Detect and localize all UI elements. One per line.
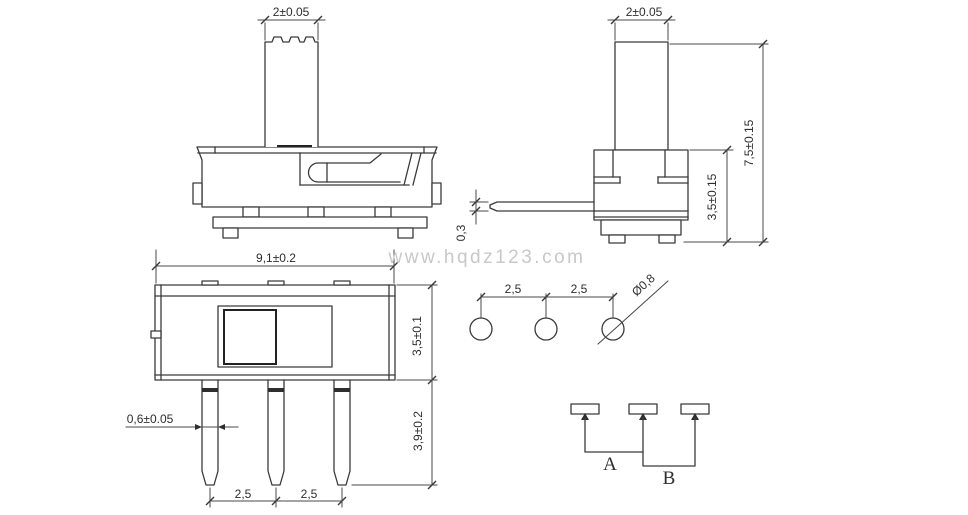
top-dim-terminal-width: 0,6±0.05 — [126, 412, 238, 430]
side-terminal-pin — [490, 202, 594, 211]
schematic-position-a-label: A — [603, 454, 617, 475]
side-dim-terminal-thickness: 0,3 — [454, 190, 488, 241]
side-body-height-label: 3,5±0.15 — [705, 173, 719, 220]
schematic-link-a — [585, 418, 643, 452]
side-foot-left — [609, 235, 625, 243]
hole-pitch-left-label: 2,5 — [505, 282, 522, 296]
top-terminal-length-label: 3,9±0.2 — [411, 411, 425, 451]
top-dim-body-width: 3,5±0.1 — [397, 281, 437, 384]
slide-switch-drawing: 2±0.05 2±0.05 — [0, 0, 968, 515]
schematic-terminal-1 — [571, 404, 599, 414]
technical-drawing-canvas: 2±0.05 2±0.05 — [0, 0, 968, 515]
schematic-terminal-3 — [681, 404, 709, 414]
top-body-length-label: 9,1±0.2 — [256, 251, 296, 265]
top-dim-terminal-length: 3,9±0.2 — [352, 380, 437, 489]
hole-pitch-right-label: 2,5 — [571, 282, 588, 296]
front-foot-left — [223, 228, 238, 238]
front-actuator — [265, 37, 318, 147]
front-view: 2±0.05 — [193, 5, 441, 238]
side-base — [601, 220, 681, 235]
side-dim-knob-width: 2±0.05 — [608, 5, 675, 40]
side-actuator — [615, 42, 668, 150]
front-side-tab-left — [193, 183, 202, 204]
side-foot-right — [659, 235, 675, 243]
hole-diameter-label: Ø0,8 — [629, 271, 658, 299]
front-foot-right — [398, 228, 413, 238]
schematic-position-b-label: B — [663, 468, 676, 489]
schematic-link-b — [643, 418, 695, 466]
circuit-schematic: A B — [571, 404, 709, 489]
top-pitch-left-label: 2,5 — [235, 487, 252, 501]
top-dim-terminal-pitch: 2,5 2,5 — [206, 487, 346, 507]
side-terminal-thickness-label: 0,3 — [454, 224, 468, 241]
side-total-height-label: 7,5±0.15 — [742, 119, 756, 166]
top-terminals — [202, 380, 350, 485]
hole-1 — [470, 318, 492, 340]
top-terminal-width-label: 0,6±0.05 — [127, 412, 174, 426]
top-body-width-label: 3,5±0.1 — [410, 316, 424, 356]
top-dim-body-length: 9,1±0.2 — [152, 250, 398, 283]
front-bump-1 — [243, 207, 259, 217]
side-knob-width-label: 2±0.05 — [626, 5, 663, 19]
hole-layout: 2,5 2,5 Ø0,8 — [470, 271, 668, 344]
top-edge-slot-1 — [202, 281, 218, 285]
top-edge-slot-2 — [268, 281, 284, 285]
front-body-outline — [197, 147, 437, 207]
top-pitch-right-label: 2,5 — [301, 487, 318, 501]
front-dim-knob-width: 2±0.05 — [258, 5, 325, 40]
top-left-notch — [151, 331, 161, 338]
hole-3 — [602, 318, 624, 340]
top-view: 9,1±0.2 3,5±0.1 0,6±0.05 3,9±0.2 — [126, 250, 437, 507]
side-view: 2±0.05 0,3 3,5±0.15 7,5±0.15 — [454, 5, 768, 246]
side-body — [594, 150, 688, 220]
top-edge-slot-3 — [334, 281, 350, 285]
front-base — [213, 217, 427, 228]
front-bump-2 — [308, 207, 324, 217]
front-bump-3 — [375, 207, 391, 217]
watermark-text: www.hqdz123.com — [388, 247, 586, 268]
front-side-tab-right — [432, 183, 441, 204]
front-knob-width-label: 2±0.05 — [273, 5, 310, 19]
hole-2 — [535, 318, 557, 340]
side-dim-body-height: 3,5±0.15 — [690, 146, 733, 246]
schematic-terminal-2 — [629, 404, 657, 414]
